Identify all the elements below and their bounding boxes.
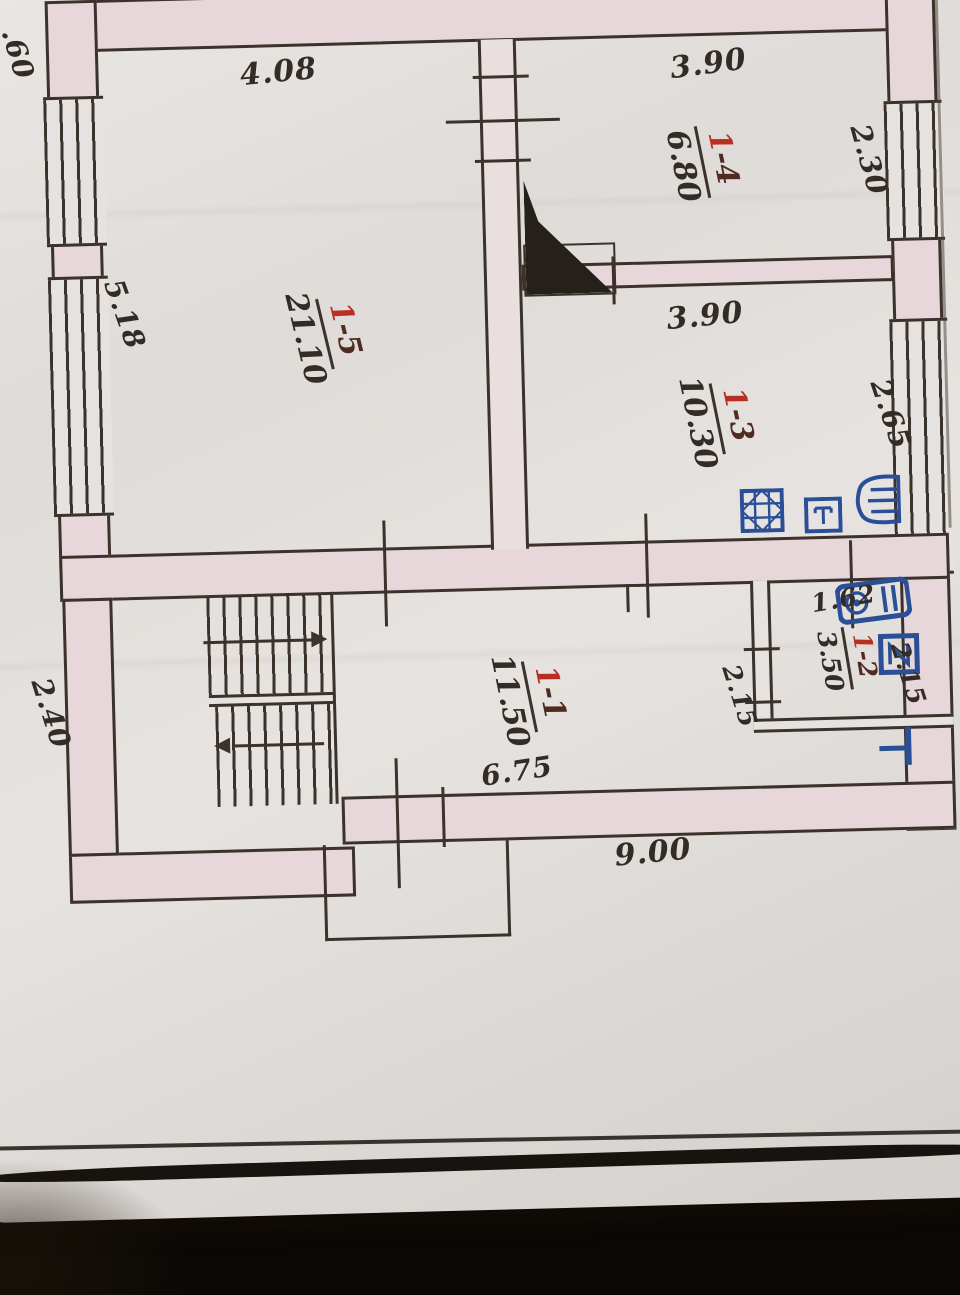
arrow-head-icon — [311, 631, 327, 647]
stair-treads-lower — [215, 704, 338, 807]
room-label: 1-4 6.80 — [660, 119, 745, 205]
door-jamb-tick — [744, 647, 780, 651]
porch-outline — [323, 840, 511, 941]
dimension-label: 9.00 — [613, 831, 693, 873]
window-icon — [883, 100, 945, 241]
floor-plan-drawing: 1-1 11.50 1-2 3.50 1-3 10.30 1-4 6.80 1-… — [0, 0, 960, 1132]
dimension-label: 4.08 — [238, 51, 318, 93]
floor-plan-paper: 1-1 11.50 1-2 3.50 1-3 10.30 1-4 6.80 1-… — [0, 0, 960, 1223]
dimension-label: 3.90 — [665, 295, 745, 337]
arrow-head-icon — [214, 738, 230, 754]
kitchen-radiator-icon — [853, 473, 904, 526]
door-jamb-tick — [626, 584, 630, 612]
dimension-label: .60 — [0, 24, 41, 83]
room-label: 1-5 21.10 — [279, 280, 371, 388]
dimension-label: 3.90 — [668, 41, 749, 86]
window-icon — [48, 276, 114, 517]
room-label: 1-3 10.30 — [673, 366, 762, 472]
room-label: 1-2 3.50 — [812, 622, 883, 694]
window-icon — [43, 96, 107, 248]
table-icon — [804, 496, 843, 533]
room-label: 1-1 11.50 — [485, 644, 574, 750]
stove-icon — [740, 488, 785, 533]
paper-corner-shadow — [0, 1150, 205, 1295]
dimension-label: 6.75 — [479, 749, 555, 792]
towel-rail-icon — [872, 723, 917, 770]
central-wall — [478, 39, 529, 550]
